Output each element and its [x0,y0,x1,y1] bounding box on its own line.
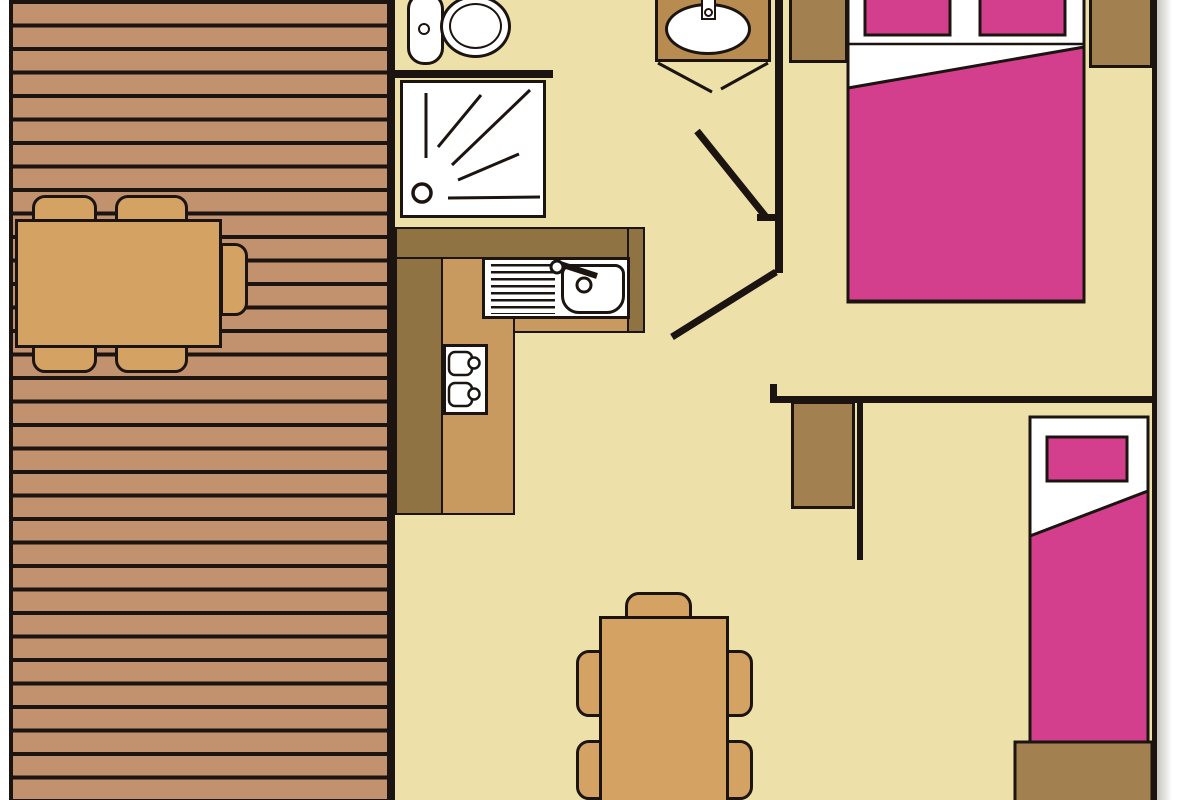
floor-plan [0,0,1200,800]
bedroom1-door-leaf [672,272,776,337]
vanity-front-mark [658,63,768,92]
shower-head [413,184,431,202]
lines-overlay [0,0,1200,800]
shower-spray [426,90,540,198]
bathroom-door-leaf [697,131,766,217]
sink-faucet [551,261,597,292]
